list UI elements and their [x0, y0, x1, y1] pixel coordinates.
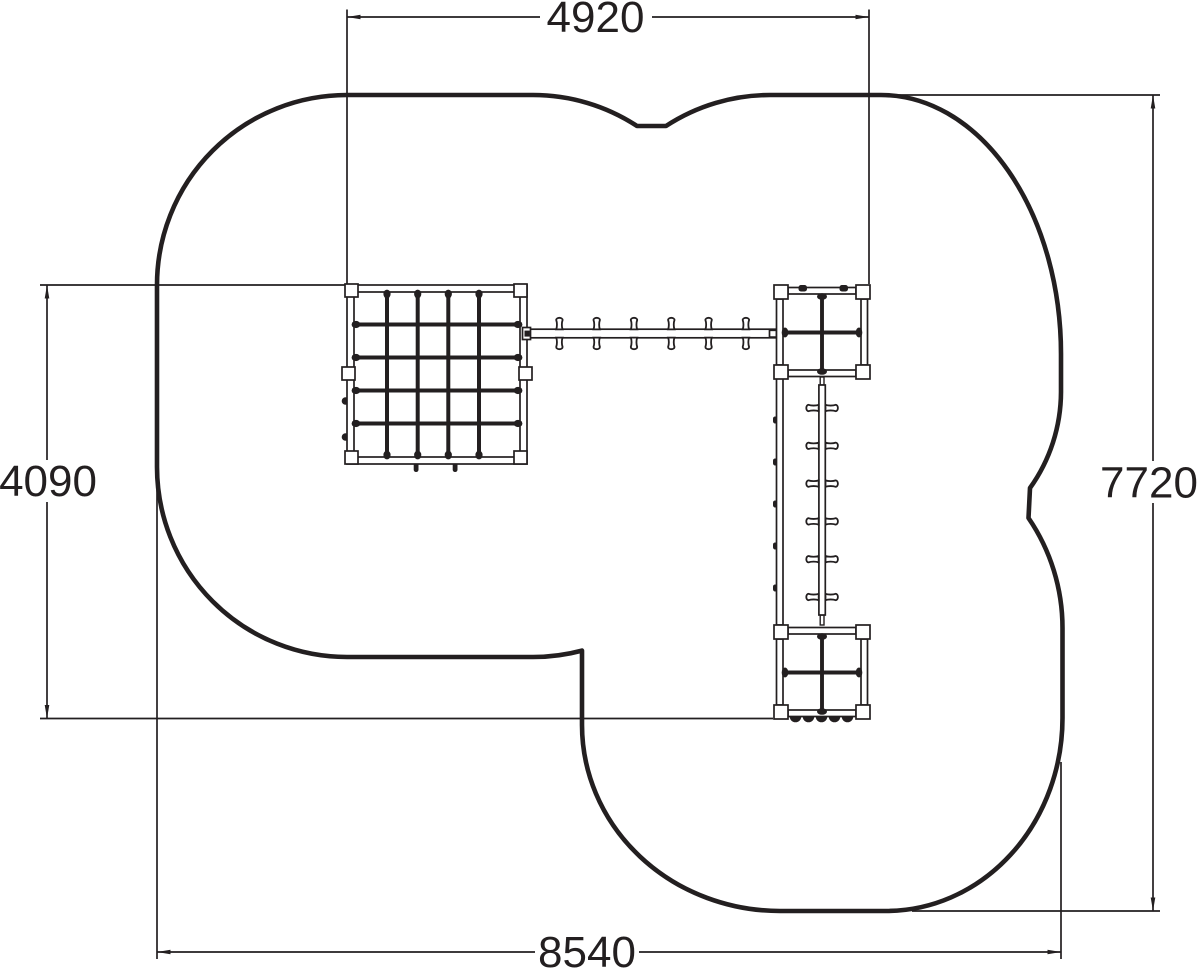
svg-text:8540: 8540 [538, 928, 636, 969]
svg-text:7720: 7720 [1100, 458, 1198, 507]
svg-text:4090: 4090 [0, 457, 97, 506]
svg-text:4920: 4920 [547, 0, 645, 42]
